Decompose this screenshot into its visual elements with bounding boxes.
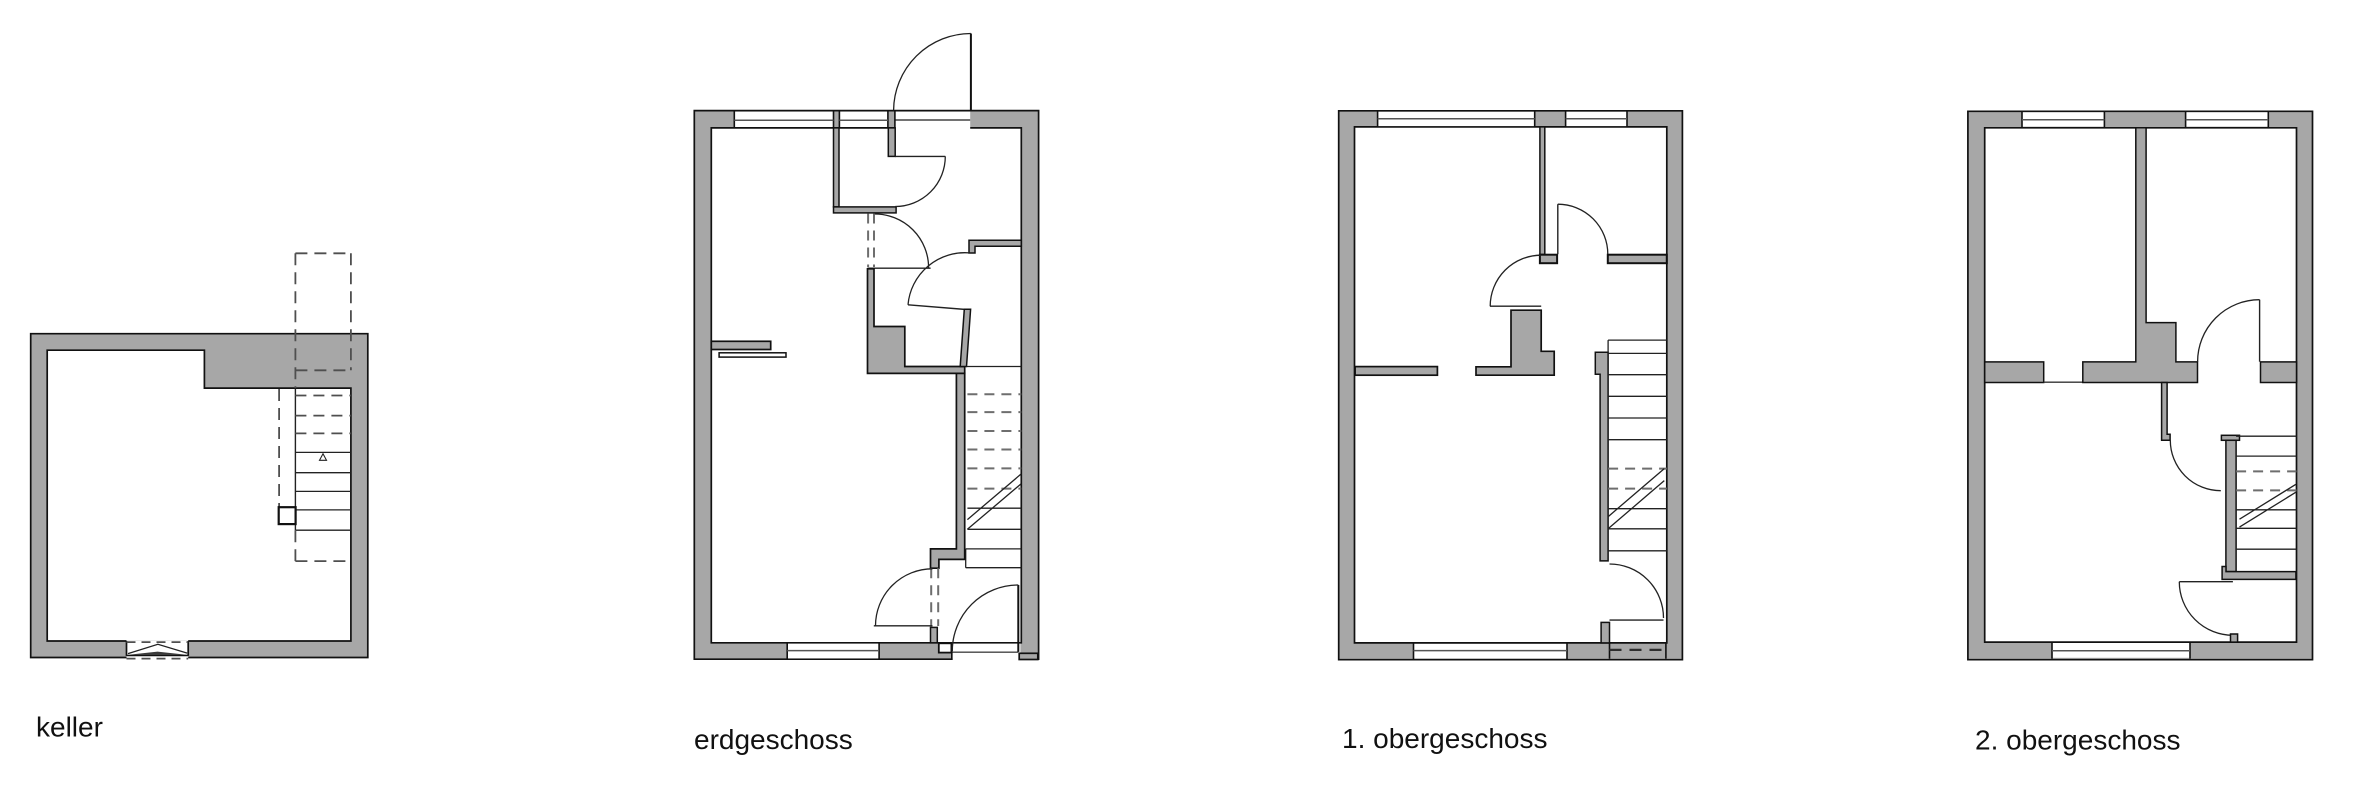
svg-text:erdgeschoss: erdgeschoss (694, 724, 853, 755)
svg-text:keller: keller (36, 712, 103, 743)
svg-text:2. obergeschoss: 2. obergeschoss (1975, 725, 2180, 756)
svg-text:1. obergeschoss: 1. obergeschoss (1342, 723, 1547, 754)
